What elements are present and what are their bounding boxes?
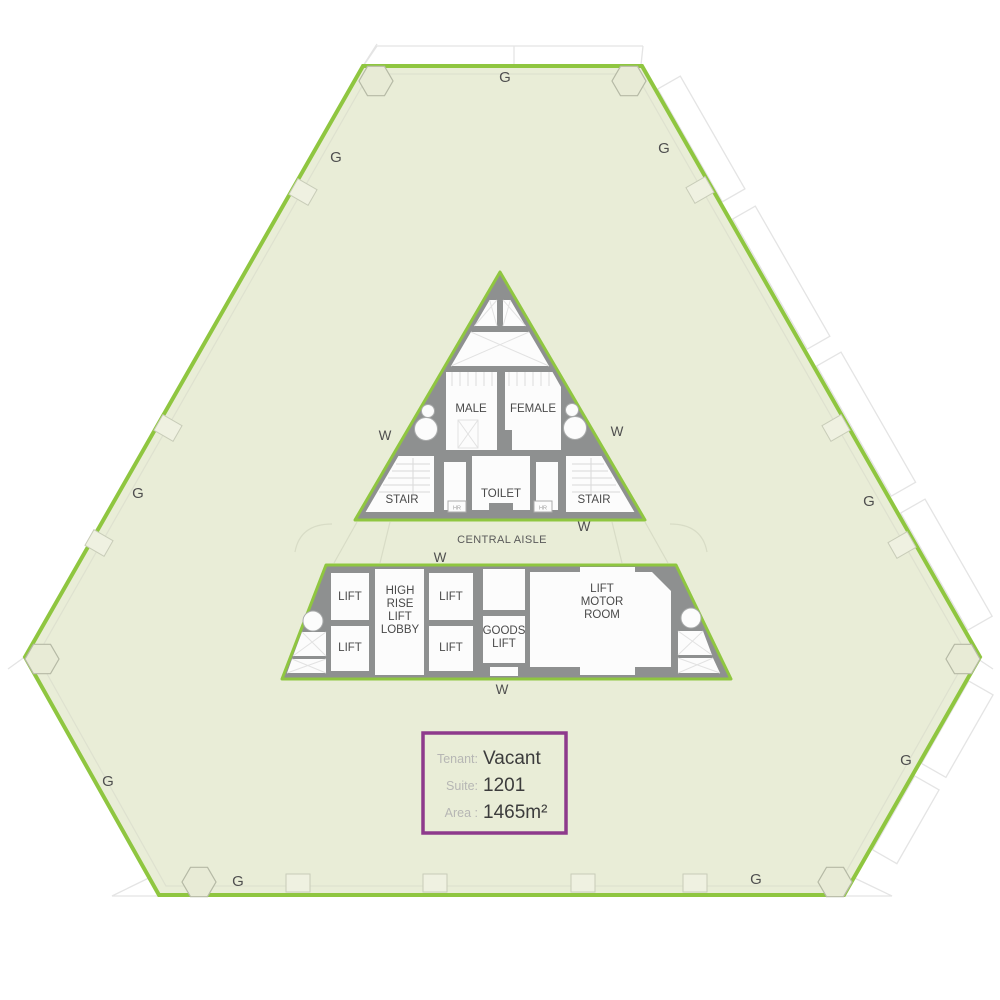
window-label-w: W (434, 550, 447, 565)
room-label-lift-motor-room: LIFT (590, 583, 614, 595)
room-label-lift: LIFT (338, 591, 362, 603)
room-label-lift: LIFT (439, 591, 463, 603)
perimeter-label-g: G (330, 149, 342, 166)
suite-label: Suite: (446, 779, 478, 793)
perimeter-label-g: G (863, 493, 875, 510)
window-label-w: W (578, 519, 591, 534)
room-label-high-rise-lobby: HIGH (386, 585, 415, 597)
room-label-stair-left: STAIR (385, 494, 418, 506)
room-label-high-rise-lobby: LOBBY (381, 624, 420, 636)
riser-circle (422, 405, 435, 418)
tenant-value: Vacant (483, 748, 541, 769)
floor-plan-canvas: MALE FEMALE TOILET STAIR STAIR HR HR (0, 0, 1000, 1000)
riser-circle (681, 608, 701, 628)
perimeter-label-g: G (232, 873, 244, 890)
room-label-high-rise-lobby: RISE (387, 598, 414, 610)
tenant-label: Tenant: (437, 752, 478, 766)
area-value: 1465m² (483, 802, 547, 823)
perimeter-label-g: G (499, 69, 511, 86)
room-label-high-rise-lobby: LIFT (388, 611, 412, 623)
riser-circle (415, 418, 438, 441)
perimeter-label-g: G (900, 752, 912, 769)
room-label-male: MALE (455, 403, 487, 415)
window-label-w: W (611, 424, 624, 439)
room-label-lift: LIFT (439, 642, 463, 654)
riser-circle (303, 611, 323, 631)
room-label-goods-lift: GOODS (483, 625, 526, 637)
perimeter-label-g: G (750, 871, 762, 888)
riser-circle (566, 404, 579, 417)
hose-reel-label: HR (539, 506, 547, 512)
window-label-w: W (379, 428, 392, 443)
room-label-female: FEMALE (510, 403, 556, 415)
area-label: Area : (445, 806, 478, 820)
perimeter-label-g: G (132, 485, 144, 502)
room-label-lift-motor-room: MOTOR (581, 596, 624, 608)
perimeter-label-g: G (658, 140, 670, 157)
room-label-lift: LIFT (338, 642, 362, 654)
room-label-stair-right: STAIR (577, 494, 610, 506)
window-label-w: W (496, 682, 509, 697)
room-label-goods-lift: LIFT (492, 638, 516, 650)
central-aisle-label: CENTRAL AISLE (457, 534, 547, 546)
riser-circle (564, 417, 587, 440)
hose-reel-label: HR (453, 506, 461, 512)
suite-value: 1201 (483, 775, 525, 796)
perimeter-label-g: G (102, 773, 114, 790)
tenant-info-box: Tenant: Vacant Suite: 1201 Area : 1465m² (423, 733, 566, 833)
room-label-lift-motor-room: ROOM (584, 609, 620, 621)
room-label-toilet: TOILET (481, 488, 521, 500)
lower-core: LIFT LIFT LIFT LIFT HIGH RISE LIFT LOBBY… (282, 565, 731, 679)
